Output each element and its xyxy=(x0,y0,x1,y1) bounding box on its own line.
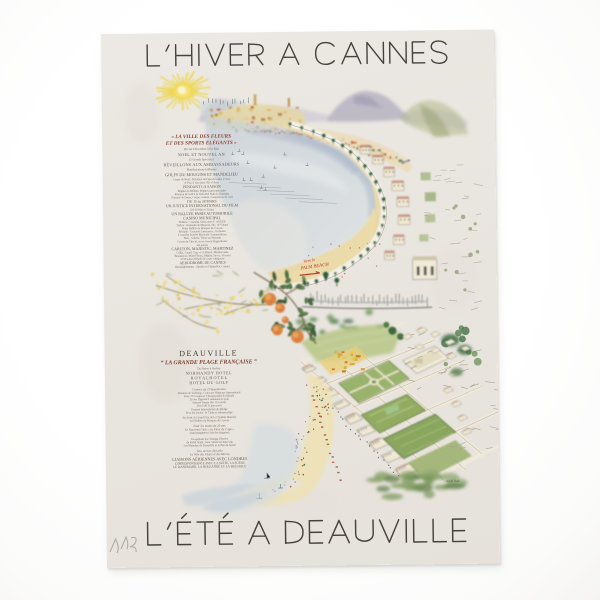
svg-text:LE DANEMARK, LA HOLLANDE ET LA: LE DANEMARK, LA HOLLANDE ET LA BELGIQUE xyxy=(173,464,246,470)
svg-text:HOTEL DU GOLF: HOTEL DU GOLF xyxy=(189,380,228,385)
svg-text:GOLFS DU MOUGINS ET MANDELIEU: GOLFS DU MOUGINS ET MANDELIEU xyxy=(165,171,238,177)
svg-text:UN JUSTICE INTERNATIONAL DU FI: UN JUSTICE INTERNATIONAL DU FILM xyxy=(166,202,239,208)
svg-text:DEAUVILLE: DEAUVILLE xyxy=(179,348,238,358)
svg-text:Du 1er Décembre à fin Mai: Du 1er Décembre à fin Mai xyxy=(184,147,219,151)
svg-text:PENDANT LA SAISON: PENDANT LA SAISON xyxy=(183,185,221,189)
svg-text:Renseignements : Syndicat d’In: Renseignements : Syndicat d’Initiative, … xyxy=(175,264,231,269)
svg-text:Les Ballets du Marquis de Cuev: Les Ballets du Marquis de Cuevas xyxy=(190,418,230,422)
svg-text:mich hub: mich hub xyxy=(446,479,460,483)
svg-text:Les Planches de Deauville et l: Les Planches de Deauville et le Bar du S… xyxy=(184,443,236,448)
svg-text:(Anciennement Club des Régates: (Anciennement Club des Régates) xyxy=(190,430,230,434)
svg-text:“ LA GRANDE PLAGE FRANÇAISE ”: “ LA GRANDE PLAGE FRANÇAISE ” xyxy=(161,359,257,366)
svg-text:NOEL ET NOUVEL AN: NOEL ET NOUVEL AN xyxy=(178,152,225,158)
